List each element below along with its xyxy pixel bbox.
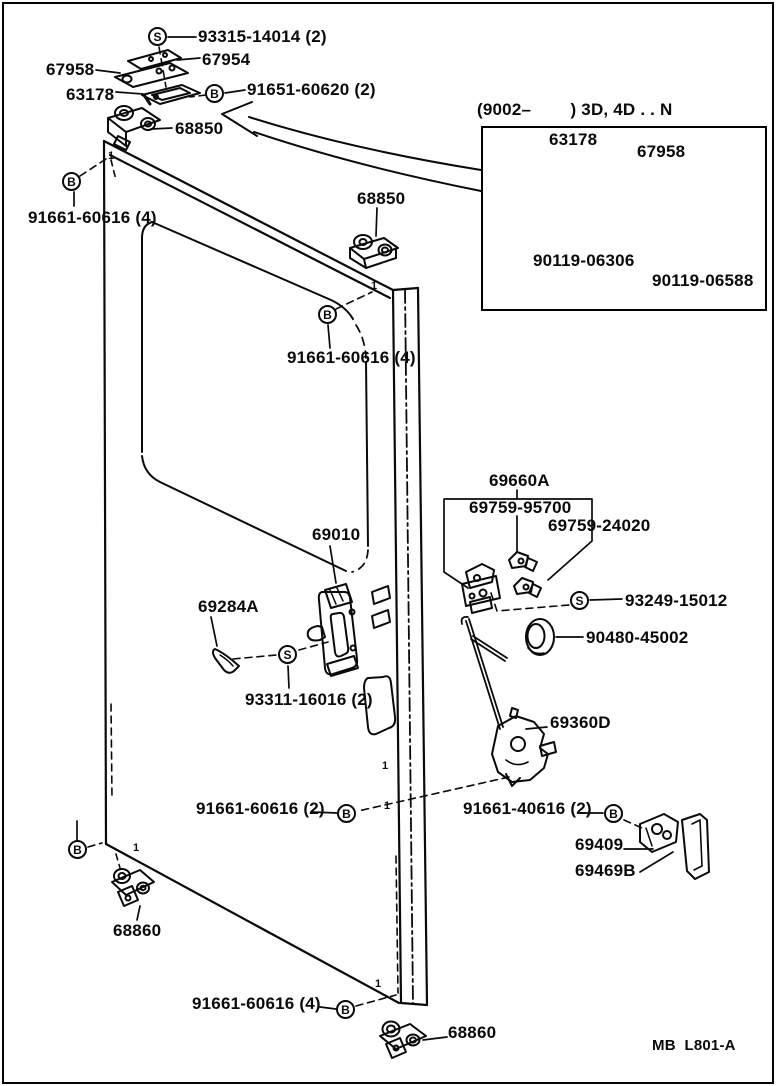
screw-symbol-93249: S [570, 591, 589, 610]
hinge-68850-top [108, 106, 160, 150]
screw-symbol-93311: S [278, 645, 297, 664]
label-91661-60616-c: 91661-60616 (2) [196, 800, 325, 817]
bolt-symbol-91651: B [205, 84, 224, 103]
bolt-symbol-91661-40616: B [604, 804, 623, 823]
handle-69010 [308, 584, 358, 676]
plate-69469b [682, 814, 709, 879]
inset-label-63178: 63178 [549, 131, 597, 148]
label-67954: 67954 [202, 51, 250, 68]
label-69759-24020: 69759-24020 [548, 517, 650, 534]
inset-pointer-arrow [222, 102, 481, 191]
ref-mark-1: 1 [133, 843, 139, 854]
label-91661-60616-b: 91661-60616 (4) [287, 349, 416, 366]
ref-mark-1: 1 [384, 801, 390, 812]
bolt-symbol-91661-c: B [337, 804, 356, 823]
plate-63178 [142, 85, 200, 104]
label-67958: 67958 [46, 61, 94, 78]
striker-69409 [640, 814, 678, 852]
label-93311-16016: 93311-16016 (2) [245, 691, 373, 708]
ref-mark-1: 1 [375, 979, 381, 990]
label-69469b: 69469B [575, 862, 636, 879]
label-90480-45002: 90480-45002 [586, 629, 688, 646]
lock-rod [462, 617, 507, 729]
inset-label-90119-06306: 90119-06306 [533, 252, 634, 269]
clamp-69759-24020 [514, 578, 541, 597]
label-91651-60620: 91651-60620 (2) [247, 81, 376, 98]
label-69759-95700: 69759-95700 [469, 499, 571, 516]
bolt-symbol-91661-d: B [336, 1000, 355, 1019]
page-code: MB L801-A [652, 1038, 736, 1053]
grommet-90480 [526, 619, 554, 655]
hinge-68860-left [112, 869, 154, 906]
door-face-details [364, 586, 395, 734]
label-63178: 63178 [66, 86, 114, 103]
label-68850-mid: 68850 [357, 190, 405, 207]
parts-diagram-page: 93315-14014 (2) 67954 67958 63178 91651-… [0, 0, 776, 1086]
label-69660a: 69660A [489, 472, 550, 489]
inset-title: (9002– ) 3D, 4D . . N [477, 101, 673, 118]
label-91661-60616-a: 91661-60616 (4) [28, 209, 157, 226]
label-69010: 69010 [312, 526, 360, 543]
bolt-symbol-91661-b: B [318, 305, 337, 324]
ref-mark-1: 1 [382, 761, 388, 772]
label-93249-15012: 93249-15012 [625, 592, 727, 609]
ref-mark-1: 1 [108, 151, 114, 162]
label-69284a: 69284A [198, 598, 259, 615]
label-68860-bottom: 68860 [448, 1024, 496, 1041]
screw-symbol-93315: S [148, 27, 167, 46]
label-91661-40616: 91661-40616 (2) [463, 800, 592, 817]
hinge-68850-mid [350, 235, 398, 268]
inset-label-90119-06588: 90119-06588 [652, 272, 753, 289]
wedge-69284a [213, 649, 239, 673]
hinge-68860-bottom [380, 1022, 426, 1059]
ref-mark-1: 1 [371, 281, 377, 292]
clamp-69759-95700 [509, 552, 537, 571]
window-cutout [142, 222, 368, 572]
bolt-symbol-91661-a: B [62, 172, 81, 191]
label-68850-top: 68850 [175, 120, 223, 137]
label-69409: 69409 [575, 836, 623, 853]
label-68860-left: 68860 [113, 922, 161, 939]
label-91661-60616-d: 91661-60616 (4) [192, 995, 321, 1012]
label-69360d: 69360D [550, 714, 611, 731]
label-93315-14014: 93315-14014 (2) [198, 28, 327, 45]
bolt-symbol-91661-lower-left: B [68, 840, 87, 859]
inset-label-67958: 67958 [637, 143, 685, 160]
